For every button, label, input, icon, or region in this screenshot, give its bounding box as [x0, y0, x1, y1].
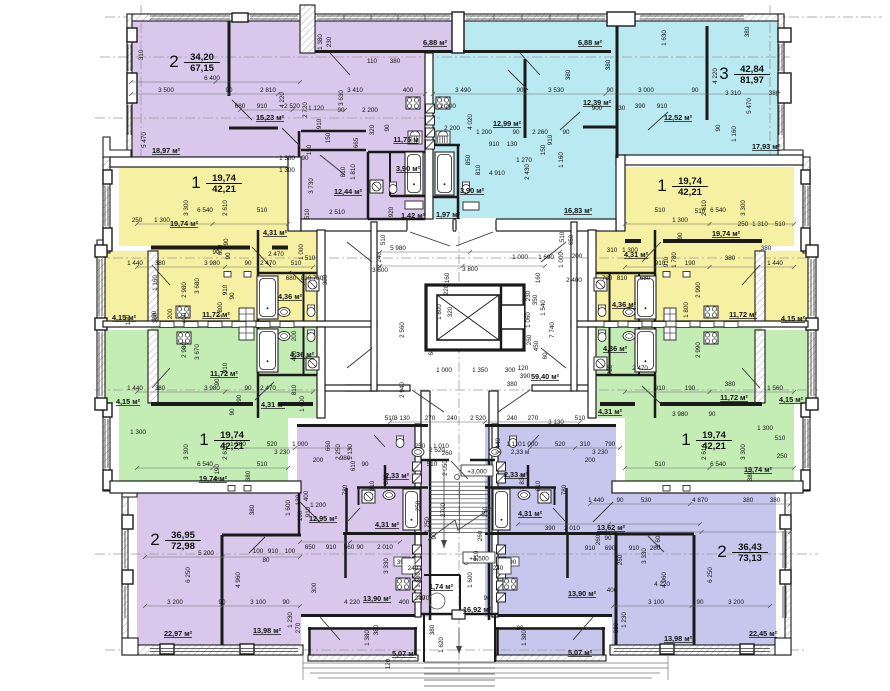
svg-text:910: 910 — [222, 362, 229, 373]
svg-text:910: 910 — [547, 134, 554, 145]
svg-text:150: 150 — [325, 132, 332, 143]
svg-text:1 160: 1 160 — [731, 126, 738, 142]
svg-text:2 990: 2 990 — [695, 282, 702, 298]
svg-text:380: 380 — [725, 255, 736, 262]
svg-text:2: 2 — [169, 52, 178, 71]
svg-text:610: 610 — [350, 460, 357, 471]
svg-text:380: 380 — [613, 622, 620, 633]
svg-text:4 220: 4 220 — [344, 599, 360, 606]
svg-text:510: 510 — [427, 461, 438, 468]
svg-text:1 000: 1 000 — [558, 252, 565, 268]
svg-text:1 800: 1 800 — [436, 304, 443, 320]
svg-text:90: 90 — [244, 385, 252, 392]
svg-text:3 980: 3 980 — [672, 411, 688, 418]
svg-text:2 610: 2 610 — [222, 200, 229, 216]
svg-text:4 220: 4 220 — [654, 581, 670, 588]
svg-text:910: 910 — [257, 103, 268, 110]
svg-text:16,83 м²: 16,83 м² — [564, 206, 593, 215]
svg-text:780: 780 — [561, 484, 568, 495]
svg-text:250: 250 — [777, 453, 788, 460]
svg-text:920: 920 — [388, 206, 395, 217]
svg-text:90: 90 — [606, 87, 614, 94]
svg-text:660: 660 — [325, 440, 332, 451]
svg-text:3 530: 3 530 — [548, 87, 564, 94]
svg-text:2 010: 2 010 — [564, 525, 580, 532]
svg-text:130: 130 — [507, 141, 518, 148]
svg-text:910: 910 — [222, 284, 229, 295]
svg-text:1 380: 1 380 — [521, 630, 528, 646]
svg-text:150: 150 — [306, 144, 313, 155]
svg-text:2 470: 2 470 — [632, 365, 648, 372]
svg-text:520: 520 — [555, 441, 566, 448]
svg-text:1 690: 1 690 — [538, 254, 554, 261]
svg-text:3 200: 3 200 — [728, 599, 744, 606]
svg-text:1 300: 1 300 — [622, 247, 638, 254]
svg-text:810: 810 — [291, 384, 298, 395]
svg-text:400: 400 — [181, 312, 188, 323]
svg-text:13,90 м²: 13,90 м² — [363, 594, 392, 603]
svg-text:1 160: 1 160 — [558, 152, 565, 168]
svg-text:190: 190 — [125, 314, 132, 325]
svg-text:42,21: 42,21 — [678, 187, 702, 198]
svg-text:2 470: 2 470 — [260, 385, 276, 392]
svg-text:1 800: 1 800 — [683, 302, 690, 318]
svg-text:4 020: 4 020 — [467, 114, 474, 130]
svg-text:1 830: 1 830 — [519, 474, 526, 490]
svg-text:910: 910 — [657, 103, 668, 110]
svg-text:90: 90 — [229, 292, 236, 300]
svg-text:2 050: 2 050 — [442, 460, 449, 476]
svg-text:3 300: 3 300 — [183, 200, 190, 216]
svg-text:2 510: 2 510 — [329, 209, 345, 216]
svg-text:1 780: 1 780 — [671, 252, 678, 268]
svg-text:400: 400 — [399, 599, 410, 606]
svg-text:190: 190 — [685, 385, 696, 392]
svg-text:3 000: 3 000 — [638, 87, 654, 94]
svg-text:100: 100 — [285, 548, 296, 555]
svg-text:3 200: 3 200 — [167, 599, 183, 606]
svg-text:230: 230 — [525, 290, 532, 301]
svg-text:810: 810 — [617, 275, 628, 282]
svg-text:560: 560 — [344, 544, 355, 551]
svg-text:2 260: 2 260 — [532, 129, 548, 136]
svg-text:13,90 м²: 13,90 м² — [568, 589, 597, 598]
svg-text:790: 790 — [605, 441, 616, 448]
svg-text:2 200: 2 200 — [362, 107, 378, 114]
svg-text:220: 220 — [443, 284, 450, 295]
svg-text:1 060: 1 060 — [525, 312, 532, 328]
svg-text:380: 380 — [743, 497, 754, 504]
svg-text:680: 680 — [640, 275, 651, 282]
svg-text:90: 90 — [696, 599, 704, 606]
svg-text:3 490: 3 490 — [455, 87, 471, 94]
svg-text:3 730: 3 730 — [308, 178, 315, 194]
svg-text:160: 160 — [535, 272, 542, 283]
svg-text:260: 260 — [595, 534, 602, 545]
svg-text:36,95: 36,95 — [171, 530, 195, 541]
svg-text:240: 240 — [447, 415, 458, 422]
svg-text:22,45 м²: 22,45 м² — [749, 629, 778, 638]
svg-text:1 620: 1 620 — [438, 637, 445, 653]
svg-text:5 470: 5 470 — [141, 132, 148, 148]
svg-text:1 300: 1 300 — [279, 155, 295, 162]
svg-text:1 000: 1 000 — [522, 441, 538, 448]
svg-text:1 300: 1 300 — [757, 425, 773, 432]
svg-text:240: 240 — [507, 415, 518, 422]
svg-text:200: 200 — [572, 253, 583, 260]
svg-text:240: 240 — [493, 565, 504, 572]
svg-text:6 540: 6 540 — [710, 207, 726, 214]
svg-text:4,15 м²: 4,15 м² — [781, 314, 806, 323]
svg-text:270: 270 — [425, 415, 436, 422]
svg-text:2 200: 2 200 — [440, 103, 456, 110]
svg-text:4,31 м²: 4,31 м² — [518, 509, 543, 518]
svg-text:1 560: 1 560 — [767, 385, 783, 392]
svg-text:4,31 м²: 4,31 м² — [375, 520, 400, 529]
svg-text:390: 390 — [545, 525, 556, 532]
svg-text:810: 810 — [301, 275, 312, 282]
svg-text:1,42 м²: 1,42 м² — [401, 211, 426, 220]
svg-text:36,43: 36,43 — [738, 542, 762, 553]
svg-text:12,95 м²: 12,95 м² — [309, 514, 338, 523]
svg-text:90: 90 — [356, 544, 364, 551]
svg-text:510: 510 — [257, 207, 268, 214]
svg-text:510: 510 — [655, 461, 666, 468]
svg-text:2 810: 2 810 — [260, 87, 276, 94]
svg-text:510: 510 — [655, 207, 666, 214]
svg-text:90: 90 — [282, 599, 290, 606]
svg-text:3 300: 3 300 — [740, 444, 747, 460]
svg-text:6,88 м²: 6,88 м² — [423, 38, 448, 47]
svg-text:250: 250 — [415, 443, 426, 450]
svg-text:4 960: 4 960 — [235, 572, 242, 588]
svg-text:2 520: 2 520 — [429, 447, 445, 454]
svg-text:510: 510 — [257, 461, 268, 468]
svg-text:90: 90 — [512, 129, 520, 136]
svg-text:90: 90 — [212, 249, 220, 256]
svg-text:34,20: 34,20 — [190, 52, 214, 63]
svg-text:240: 240 — [408, 565, 419, 572]
svg-text:260: 260 — [477, 530, 484, 541]
svg-text:3 670: 3 670 — [194, 344, 201, 360]
svg-text:3 230: 3 230 — [592, 449, 608, 456]
svg-text:3 230: 3 230 — [274, 449, 290, 456]
svg-text:59,40 м²: 59,40 м² — [531, 372, 560, 381]
svg-text:1 440: 1 440 — [495, 438, 502, 454]
svg-text:250: 250 — [415, 500, 422, 511]
svg-text:120: 120 — [385, 658, 392, 669]
svg-text:1 000: 1 000 — [436, 367, 452, 374]
svg-text:13,98 м²: 13,98 м² — [253, 626, 282, 635]
svg-text:1 350: 1 350 — [472, 367, 488, 374]
svg-text:510: 510 — [775, 435, 786, 442]
svg-text:90: 90 — [214, 378, 221, 386]
svg-text:120: 120 — [518, 365, 529, 372]
svg-text:200: 200 — [167, 308, 174, 319]
svg-text:3 310: 3 310 — [725, 90, 741, 97]
svg-text:650: 650 — [568, 234, 575, 245]
svg-text:650: 650 — [305, 544, 316, 551]
svg-text:16,92 м²: 16,92 м² — [463, 605, 492, 614]
svg-text:1 300: 1 300 — [154, 217, 170, 224]
svg-text:3 630: 3 630 — [338, 90, 345, 106]
svg-text:350: 350 — [532, 294, 539, 305]
svg-text:90: 90 — [616, 497, 624, 504]
svg-text:780: 780 — [602, 275, 613, 282]
svg-text:3 800: 3 800 — [462, 266, 478, 273]
svg-text:400: 400 — [403, 87, 414, 94]
svg-text:1 200: 1 200 — [476, 129, 492, 136]
svg-text:520: 520 — [267, 441, 278, 448]
svg-text:1 440: 1 440 — [767, 260, 783, 267]
svg-text:380: 380 — [390, 58, 401, 65]
svg-text:910: 910 — [316, 118, 323, 129]
svg-text:3 100: 3 100 — [250, 599, 266, 606]
svg-text:17,93 м²: 17,93 м² — [752, 142, 781, 151]
svg-text:380: 380 — [565, 69, 572, 80]
svg-text:510: 510 — [304, 208, 311, 219]
svg-text:13,98 м²: 13,98 м² — [664, 634, 693, 643]
svg-text:1 230: 1 230 — [287, 612, 294, 628]
svg-text:6 540: 6 540 — [197, 207, 213, 214]
svg-text:90: 90 — [223, 238, 230, 246]
svg-text:200: 200 — [313, 457, 324, 464]
svg-text:2 560: 2 560 — [399, 322, 406, 338]
svg-text:2 610: 2 610 — [701, 200, 708, 216]
svg-text:130: 130 — [295, 494, 302, 505]
svg-text:19,74 м²: 19,74 м² — [712, 229, 741, 238]
svg-text:19,74: 19,74 — [678, 176, 702, 187]
svg-text:5,07 м²: 5,07 м² — [568, 648, 593, 657]
svg-text:1 300: 1 300 — [279, 167, 295, 174]
svg-text:910: 910 — [655, 385, 666, 392]
svg-text:6 400: 6 400 — [204, 75, 220, 82]
svg-text:90: 90 — [361, 461, 369, 468]
svg-text:11,72 м²: 11,72 м² — [729, 310, 757, 319]
svg-text:80: 80 — [262, 557, 270, 564]
svg-text:300: 300 — [311, 582, 318, 593]
svg-text:380: 380 — [155, 385, 166, 392]
svg-text:1 440: 1 440 — [127, 385, 143, 392]
svg-text:3 980: 3 980 — [204, 260, 220, 267]
svg-text:3 130: 3 130 — [394, 415, 410, 422]
svg-text:680: 680 — [235, 103, 246, 110]
svg-text:90: 90 — [244, 260, 252, 267]
svg-text:90: 90 — [715, 124, 722, 132]
svg-text:3,90 м²: 3,90 м² — [396, 164, 421, 173]
svg-text:665: 665 — [353, 137, 360, 148]
svg-text:190: 190 — [685, 260, 696, 267]
svg-text:5 470: 5 470 — [746, 98, 753, 114]
svg-text:2 470: 2 470 — [268, 251, 284, 258]
svg-text:2 400: 2 400 — [566, 277, 582, 284]
svg-text:390: 390 — [520, 373, 531, 380]
svg-text:+3,000: +3,000 — [467, 469, 487, 476]
svg-text:400: 400 — [291, 350, 298, 361]
svg-text:2 010: 2 010 — [377, 544, 393, 551]
svg-text:6 540: 6 540 — [197, 461, 213, 468]
svg-text:72,98: 72,98 — [171, 541, 195, 552]
svg-text:260: 260 — [526, 334, 533, 345]
svg-text:90: 90 — [483, 595, 491, 602]
svg-text:60: 60 — [428, 348, 435, 356]
svg-text:380: 380 — [155, 260, 166, 267]
svg-text:1 380: 1 380 — [364, 630, 371, 646]
svg-text:1 630: 1 630 — [661, 30, 668, 46]
svg-text:380: 380 — [747, 470, 754, 481]
svg-text:510: 510 — [291, 260, 302, 267]
svg-text:2700: 2700 — [440, 503, 447, 518]
svg-text:2 470: 2 470 — [260, 260, 276, 267]
svg-text:90: 90 — [691, 87, 699, 94]
svg-text:12,99 м²: 12,99 м² — [493, 119, 522, 128]
svg-text:4,31 м²: 4,31 м² — [598, 407, 623, 416]
svg-text:380: 380 — [249, 504, 256, 515]
svg-text:1: 1 — [191, 173, 200, 192]
svg-text:90: 90 — [562, 129, 570, 136]
svg-text:3,90 м²: 3,90 м² — [460, 186, 485, 195]
svg-text:1 300: 1 300 — [230, 441, 246, 448]
svg-text:1 250: 1 250 — [424, 517, 431, 533]
svg-text:2 520: 2 520 — [284, 103, 300, 110]
svg-text:810: 810 — [340, 166, 347, 177]
svg-text:910: 910 — [663, 256, 670, 267]
svg-text:690: 690 — [605, 545, 616, 552]
svg-text:1 120: 1 120 — [308, 105, 324, 112]
svg-text:19,74 м²: 19,74 м² — [170, 219, 199, 228]
svg-text:1 600: 1 600 — [467, 572, 474, 588]
svg-text:300: 300 — [505, 367, 516, 374]
svg-text:690: 690 — [236, 394, 243, 405]
svg-text:2,33 м: 2,33 м — [511, 449, 529, 456]
svg-text:42,84: 42,84 — [740, 64, 764, 75]
svg-text:510: 510 — [575, 415, 586, 422]
svg-text:160: 160 — [297, 510, 304, 521]
svg-text:3 300: 3 300 — [183, 444, 190, 460]
svg-text:90: 90 — [708, 411, 716, 418]
svg-text:22,97 м²: 22,97 м² — [164, 629, 193, 638]
svg-text:3 500: 3 500 — [158, 87, 174, 94]
svg-text:3: 3 — [719, 64, 728, 83]
svg-text:150: 150 — [540, 144, 547, 155]
svg-text:12,44 м²: 12,44 м² — [334, 187, 363, 196]
svg-text:1 000: 1 000 — [292, 441, 308, 448]
svg-text:320: 320 — [447, 306, 454, 317]
svg-text:1: 1 — [199, 430, 208, 449]
svg-text:5,07 м²: 5,07 м² — [392, 649, 417, 658]
svg-text:90: 90 — [677, 232, 684, 240]
svg-text:1 000: 1 000 — [512, 254, 528, 261]
svg-text:1 200: 1 200 — [310, 502, 326, 509]
svg-text:200: 200 — [291, 330, 298, 341]
svg-text:910: 910 — [489, 141, 500, 148]
svg-text:400: 400 — [607, 587, 618, 594]
svg-text:240: 240 — [415, 595, 426, 602]
svg-text:6 250: 6 250 — [185, 567, 192, 583]
svg-text:90: 90 — [218, 599, 226, 606]
svg-text:380: 380 — [429, 624, 436, 635]
svg-text:1 600: 1 600 — [285, 500, 292, 516]
svg-text:6,88 м²: 6,88 м² — [578, 38, 603, 47]
svg-text:850: 850 — [465, 154, 472, 165]
svg-text:13,62 м²: 13,62 м² — [597, 523, 626, 532]
svg-text:2 980: 2 980 — [181, 342, 188, 358]
svg-text:4,31 м²: 4,31 м² — [261, 400, 286, 409]
svg-text:60: 60 — [542, 352, 549, 360]
svg-text:450: 450 — [533, 340, 540, 351]
svg-text:2 610: 2 610 — [701, 444, 708, 460]
svg-text:380: 380 — [373, 624, 380, 635]
svg-text:1,97 м²: 1,97 м² — [436, 210, 461, 219]
svg-text:1 800: 1 800 — [217, 302, 224, 318]
svg-text:270: 270 — [528, 415, 539, 422]
svg-text:400: 400 — [303, 490, 310, 501]
svg-text:380: 380 — [507, 381, 518, 388]
svg-text:90: 90 — [337, 107, 345, 114]
svg-text:1 270: 1 270 — [516, 157, 532, 164]
svg-text:15,23 м²: 15,23 м² — [256, 113, 285, 122]
svg-text:1,74 м²: 1,74 м² — [429, 582, 454, 591]
svg-text:67,15: 67,15 — [190, 63, 214, 74]
svg-text:90: 90 — [225, 252, 232, 260]
svg-text:2: 2 — [150, 530, 159, 549]
svg-text:130: 130 — [615, 105, 626, 112]
svg-text:90: 90 — [516, 87, 524, 94]
svg-text:3 410: 3 410 — [347, 87, 363, 94]
svg-text:12,52 м²: 12,52 м² — [664, 113, 693, 122]
svg-text:900: 900 — [592, 105, 603, 112]
svg-text:2 430: 2 430 — [524, 164, 531, 180]
svg-text:780: 780 — [342, 484, 349, 495]
svg-text:90: 90 — [604, 535, 612, 542]
svg-text:3 130: 3 130 — [548, 419, 564, 426]
svg-text:1 230: 1 230 — [621, 612, 628, 628]
svg-text:1 600: 1 600 — [655, 532, 662, 548]
svg-text:680: 680 — [286, 275, 297, 282]
svg-text:4,36 м²: 4,36 м² — [603, 344, 628, 353]
svg-text:1 000: 1 000 — [299, 396, 306, 412]
svg-text:3 330: 3 330 — [383, 558, 390, 574]
svg-text:2 520: 2 520 — [470, 415, 486, 422]
svg-text:2 940: 2 940 — [399, 382, 406, 398]
svg-text:780: 780 — [607, 364, 614, 375]
svg-text:1 310: 1 310 — [752, 221, 768, 228]
svg-text:510: 510 — [305, 255, 316, 262]
svg-text:250: 250 — [482, 506, 489, 517]
svg-text:5 980: 5 980 — [390, 245, 406, 252]
svg-text:380: 380 — [245, 470, 252, 481]
svg-text:19,74: 19,74 — [220, 430, 244, 441]
svg-text:18,97 м²: 18,97 м² — [152, 146, 181, 155]
svg-text:2 610: 2 610 — [222, 444, 229, 460]
svg-text:6 540: 6 540 — [710, 461, 726, 468]
svg-text:4 910: 4 910 — [489, 170, 505, 177]
svg-text:100: 100 — [253, 548, 264, 555]
svg-text:19,74: 19,74 — [212, 173, 236, 184]
svg-text:3 300: 3 300 — [740, 200, 747, 216]
svg-text:380: 380 — [761, 245, 772, 252]
svg-text:380: 380 — [605, 59, 612, 70]
svg-text:3 680: 3 680 — [194, 278, 201, 294]
svg-text:310: 310 — [138, 49, 145, 60]
svg-text:230: 230 — [326, 36, 333, 47]
svg-text:380: 380 — [770, 497, 781, 504]
svg-text:310: 310 — [580, 441, 591, 448]
svg-text:80: 80 — [516, 625, 524, 632]
svg-text:380: 380 — [152, 312, 159, 323]
svg-text:510: 510 — [380, 234, 387, 245]
svg-text:160: 160 — [444, 272, 451, 283]
